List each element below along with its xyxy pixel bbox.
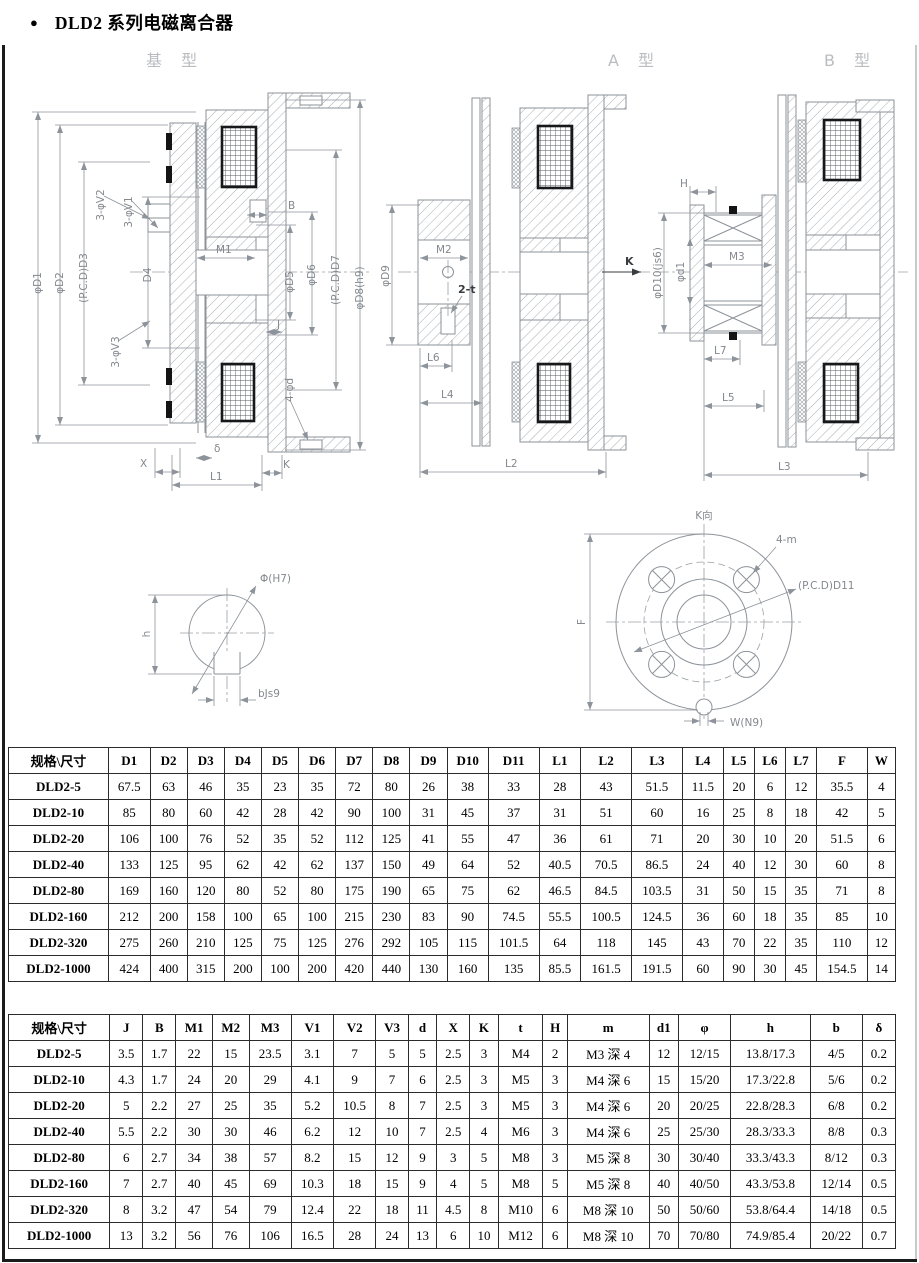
value-cell: 191.5 xyxy=(632,956,683,982)
value-cell: 161.5 xyxy=(581,956,632,982)
value-cell: 4.1 xyxy=(291,1067,333,1093)
value-cell: 125 xyxy=(373,826,410,852)
column-header: F xyxy=(817,748,868,774)
value-cell: M5 深 8 xyxy=(567,1171,649,1197)
value-cell: 25/30 xyxy=(679,1119,731,1145)
value-cell: 6 xyxy=(437,1223,470,1249)
dim-label-x: X xyxy=(140,458,147,470)
value-cell: 2.7 xyxy=(143,1171,176,1197)
dim-label-4m: 4-m xyxy=(776,534,797,546)
technical-drawings: 基 型 A 型 B 型 xyxy=(0,45,919,742)
value-cell: 28 xyxy=(261,800,298,826)
value-cell: 12 xyxy=(649,1041,678,1067)
value-cell: 54 xyxy=(212,1197,249,1223)
dim-label-d2: φD2 xyxy=(54,272,66,294)
value-cell: 83 xyxy=(410,904,447,930)
value-cell: 101.5 xyxy=(488,930,539,956)
column-header: d xyxy=(408,1015,436,1041)
dim-label-l1: L1 xyxy=(210,471,223,483)
value-cell: 35.5 xyxy=(817,774,868,800)
value-cell: 106 xyxy=(249,1223,291,1249)
value-cell: 200 xyxy=(150,904,187,930)
value-cell: 38 xyxy=(212,1145,249,1171)
table-row: DLD2-16072.740456910.31815945M85M5 深 840… xyxy=(9,1171,896,1197)
value-cell: 15 xyxy=(212,1041,249,1067)
dim-label-k-arrow: K xyxy=(625,255,634,268)
table-row: DLD2-16021220015810065100215230839074.55… xyxy=(9,904,896,930)
value-cell: 18 xyxy=(785,800,816,826)
value-cell: 40/50 xyxy=(679,1171,731,1197)
value-cell: 43 xyxy=(682,930,723,956)
value-cell: 130 xyxy=(410,956,447,982)
value-cell: 65 xyxy=(261,904,298,930)
value-cell: 24 xyxy=(682,852,723,878)
value-cell: 71 xyxy=(817,878,868,904)
table-row: DLD2-20106100765235521121254155473661712… xyxy=(9,826,896,852)
dim-label-m2: M2 xyxy=(436,244,452,256)
dim-label-v3: 3-φV3 xyxy=(110,336,122,367)
column-header: D3 xyxy=(187,748,224,774)
value-cell: 292 xyxy=(373,930,410,956)
dim-label-h: H xyxy=(680,178,688,190)
column-header: t xyxy=(498,1015,543,1041)
value-cell: 30 xyxy=(723,826,754,852)
column-header: K xyxy=(470,1015,498,1041)
column-header: D4 xyxy=(224,748,261,774)
value-cell: 4.3 xyxy=(110,1067,143,1093)
value-cell: 75 xyxy=(261,930,298,956)
column-header: D1 xyxy=(108,748,150,774)
dim-label-m3: M3 xyxy=(729,251,745,263)
value-cell: 20/25 xyxy=(679,1093,731,1119)
value-cell: 45 xyxy=(447,800,488,826)
value-cell: 40.5 xyxy=(539,852,581,878)
value-cell: 95 xyxy=(187,852,224,878)
caption-base-type: 基 型 xyxy=(146,51,204,70)
value-cell: 145 xyxy=(632,930,683,956)
value-cell: 35 xyxy=(299,774,336,800)
value-cell: M4 xyxy=(498,1041,543,1067)
model-cell: DLD2-10 xyxy=(9,1067,110,1093)
value-cell: 20 xyxy=(723,774,754,800)
value-cell: 53.8/64.4 xyxy=(731,1197,811,1223)
value-cell: 35 xyxy=(261,826,298,852)
value-cell: 12/15 xyxy=(679,1041,731,1067)
value-cell: 0.7 xyxy=(862,1223,895,1249)
value-cell: 3 xyxy=(543,1145,567,1171)
value-cell: 22 xyxy=(754,930,785,956)
value-cell: 7 xyxy=(408,1093,436,1119)
dim-label-pcd-d11: (P.C.D)D11 xyxy=(798,580,854,592)
value-cell: 45 xyxy=(785,956,816,982)
value-cell: 175 xyxy=(336,878,373,904)
value-cell: 3.2 xyxy=(143,1223,176,1249)
value-cell: 0.5 xyxy=(862,1171,895,1197)
value-cell: 12 xyxy=(334,1119,376,1145)
dim-label-d1-small: φd1 xyxy=(675,262,687,282)
table-row: DLD2-32083.247547912.42218114.58M106M8 深… xyxy=(9,1197,896,1223)
value-cell: 61 xyxy=(581,826,632,852)
value-cell: 150 xyxy=(373,852,410,878)
value-cell: M4 深 6 xyxy=(567,1119,649,1145)
value-cell: 0.2 xyxy=(862,1067,895,1093)
value-cell: 2.2 xyxy=(143,1093,176,1119)
value-cell: 40 xyxy=(176,1171,213,1197)
column-header: L7 xyxy=(785,748,816,774)
value-cell: 1.7 xyxy=(143,1041,176,1067)
value-cell: 18 xyxy=(376,1197,409,1223)
column-header: L4 xyxy=(682,748,723,774)
dim-label-l3: L3 xyxy=(778,461,791,473)
value-cell: 4 xyxy=(437,1171,470,1197)
value-cell: 20 xyxy=(212,1067,249,1093)
value-cell: 65 xyxy=(410,878,447,904)
value-cell: 125 xyxy=(224,930,261,956)
value-cell: 5 xyxy=(408,1041,436,1067)
value-cell: 80 xyxy=(224,878,261,904)
value-cell: 76 xyxy=(187,826,224,852)
value-cell: 2.2 xyxy=(143,1119,176,1145)
table-row: DLD2-10004244003152001002004204401301601… xyxy=(9,956,896,982)
value-cell: 80 xyxy=(150,800,187,826)
value-cell: M6 xyxy=(498,1119,543,1145)
dimension-table-2: 规格\尺寸JBM1M2M3V1V2V3dXKtHmd1φhbδDLD2-53.5… xyxy=(8,1014,896,1249)
table-row: DLD2-401331259562426213715049645240.570.… xyxy=(9,852,896,878)
value-cell: 62 xyxy=(224,852,261,878)
value-cell: 100 xyxy=(299,904,336,930)
value-cell: 24 xyxy=(176,1067,213,1093)
dim-label-h-bore: h xyxy=(141,631,153,638)
value-cell: 30 xyxy=(212,1119,249,1145)
table-row: DLD2-1000133.2567610616.5282413610M126M8… xyxy=(9,1223,896,1249)
value-cell: 45 xyxy=(212,1171,249,1197)
value-cell: 30 xyxy=(649,1145,678,1171)
value-cell: 12 xyxy=(754,852,785,878)
column-header: L2 xyxy=(581,748,632,774)
value-cell: 10.3 xyxy=(291,1171,333,1197)
value-cell: 35 xyxy=(224,774,261,800)
value-cell: 51.5 xyxy=(632,774,683,800)
value-cell: 5 xyxy=(376,1041,409,1067)
value-cell: 115 xyxy=(447,930,488,956)
value-cell: 200 xyxy=(299,956,336,982)
table-row: DLD2-405.52.23030466.2121072.54M63M4 深 6… xyxy=(9,1119,896,1145)
value-cell: 86.5 xyxy=(632,852,683,878)
value-cell: 84.5 xyxy=(581,878,632,904)
column-header: L1 xyxy=(539,748,581,774)
value-cell: 50/60 xyxy=(679,1197,731,1223)
value-cell: 100.5 xyxy=(581,904,632,930)
value-cell: 10.5 xyxy=(334,1093,376,1119)
value-cell: 43 xyxy=(581,774,632,800)
value-cell: 8 xyxy=(376,1093,409,1119)
value-cell: 25 xyxy=(649,1119,678,1145)
value-cell: 12/14 xyxy=(810,1171,862,1197)
value-cell: 28.3/33.3 xyxy=(731,1119,811,1145)
dim-label-d4: D4 xyxy=(142,267,154,282)
value-cell: 36 xyxy=(682,904,723,930)
column-header: D8 xyxy=(373,748,410,774)
value-cell: M8 深 10 xyxy=(567,1223,649,1249)
value-cell: M8 xyxy=(498,1171,543,1197)
column-header: L6 xyxy=(754,748,785,774)
value-cell: 52 xyxy=(261,878,298,904)
value-cell: 135 xyxy=(488,956,539,982)
value-cell: 27 xyxy=(176,1093,213,1119)
bullet-icon: ● xyxy=(30,15,38,31)
value-cell: 276 xyxy=(336,930,373,956)
value-cell: 90 xyxy=(723,956,754,982)
value-cell: 103.5 xyxy=(632,878,683,904)
value-cell: 64 xyxy=(447,852,488,878)
flange-k-view: K向 4-m xyxy=(576,509,854,729)
value-cell: 33.3/43.3 xyxy=(731,1145,811,1171)
value-cell: 125 xyxy=(299,930,336,956)
column-header: b xyxy=(810,1015,862,1041)
dim-label-l5: L5 xyxy=(722,392,735,404)
value-cell: 4 xyxy=(867,774,895,800)
column-header: D7 xyxy=(336,748,373,774)
value-cell: 3 xyxy=(543,1067,567,1093)
dim-label-d1: φD1 xyxy=(32,272,44,294)
value-cell: 33 xyxy=(488,774,539,800)
value-cell: 47 xyxy=(176,1197,213,1223)
value-cell: 6 xyxy=(543,1197,567,1223)
model-cell: DLD2-40 xyxy=(9,1119,110,1145)
page-title: DLD2 系列电磁离合器 xyxy=(55,10,234,35)
value-cell: 74.9/85.4 xyxy=(731,1223,811,1249)
value-cell: 85 xyxy=(108,800,150,826)
value-cell: 7 xyxy=(408,1119,436,1145)
value-cell: 90 xyxy=(447,904,488,930)
value-cell: 12.4 xyxy=(291,1197,333,1223)
value-cell: 6 xyxy=(408,1067,436,1093)
model-cell: DLD2-10 xyxy=(9,800,109,826)
value-cell: M8 深 10 xyxy=(567,1197,649,1223)
value-cell: 275 xyxy=(108,930,150,956)
value-cell: 36 xyxy=(539,826,581,852)
value-cell: 6/8 xyxy=(810,1093,862,1119)
dim-label-d5: φD5 xyxy=(284,271,296,293)
value-cell: 100 xyxy=(373,800,410,826)
value-cell: 160 xyxy=(447,956,488,982)
drawing-base-type: φD1 φD2 (P.C.D)D3 D4 3-φV2 3-φV1 3-φV3 B… xyxy=(32,93,372,491)
dim-label-j: J xyxy=(276,319,280,331)
value-cell: 13 xyxy=(408,1223,436,1249)
column-header: H xyxy=(543,1015,567,1041)
value-cell: 30 xyxy=(754,956,785,982)
table-row: DLD2-8062.73438578.21512935M83M5 深 83030… xyxy=(9,1145,896,1171)
value-cell: 85 xyxy=(817,904,868,930)
column-header: M1 xyxy=(176,1015,213,1041)
value-cell: 3 xyxy=(470,1041,498,1067)
value-cell: 26 xyxy=(410,774,447,800)
value-cell: 46.5 xyxy=(539,878,581,904)
value-cell: M5 xyxy=(498,1067,543,1093)
value-cell: 17.3/22.8 xyxy=(731,1067,811,1093)
value-cell: 12 xyxy=(376,1145,409,1171)
value-cell: 18 xyxy=(754,904,785,930)
value-cell: 69 xyxy=(249,1171,291,1197)
value-cell: 8 xyxy=(867,852,895,878)
page-frame-bottom xyxy=(2,1259,917,1262)
value-cell: 210 xyxy=(187,930,224,956)
dim-label-d8: φD8(h9) xyxy=(354,266,366,309)
column-header: L3 xyxy=(632,748,683,774)
value-cell: 55.5 xyxy=(539,904,581,930)
column-header: V3 xyxy=(376,1015,409,1041)
value-cell: 43.3/53.8 xyxy=(731,1171,811,1197)
model-cell: DLD2-40 xyxy=(9,852,109,878)
value-cell: 70 xyxy=(649,1223,678,1249)
dim-label-4d: 4-φd xyxy=(284,378,296,402)
column-header: D2 xyxy=(150,748,187,774)
column-header: D11 xyxy=(488,748,539,774)
dim-label-v2: 3-φV2 xyxy=(95,189,107,220)
value-cell: 14/18 xyxy=(810,1197,862,1223)
dim-label-l7: L7 xyxy=(714,345,727,357)
model-cell: DLD2-1000 xyxy=(9,1223,110,1249)
dim-label-d10: φD10(js6) xyxy=(652,247,664,299)
value-cell: 31 xyxy=(539,800,581,826)
value-cell: 15 xyxy=(754,878,785,904)
column-header: 规格\尺寸 xyxy=(9,1015,110,1041)
column-header: M3 xyxy=(249,1015,291,1041)
dim-label-l2: L2 xyxy=(505,458,518,470)
value-cell: 35 xyxy=(785,930,816,956)
dim-label-d7: (P.C.D)D7 xyxy=(330,255,342,305)
value-cell: 16.5 xyxy=(291,1223,333,1249)
value-cell: 70/80 xyxy=(679,1223,731,1249)
value-cell: 6 xyxy=(110,1145,143,1171)
value-cell: 5 xyxy=(470,1145,498,1171)
dim-label-v1: 3-φV1 xyxy=(123,196,135,227)
column-header: D9 xyxy=(410,748,447,774)
value-cell: 28 xyxy=(539,774,581,800)
value-cell: 75 xyxy=(447,878,488,904)
value-cell: 56 xyxy=(176,1223,213,1249)
value-cell: 23 xyxy=(261,774,298,800)
value-cell: 7 xyxy=(334,1041,376,1067)
value-cell: 34 xyxy=(176,1145,213,1171)
value-cell: 100 xyxy=(224,904,261,930)
value-cell: 15 xyxy=(376,1171,409,1197)
value-cell: 105 xyxy=(410,930,447,956)
value-cell: 42 xyxy=(224,800,261,826)
value-cell: 3 xyxy=(437,1145,470,1171)
header-row: 规格\尺寸D1D2D3D4D5D6D7D8D9D10D11L1L2L3L4L5L… xyxy=(9,748,896,774)
column-header: m xyxy=(567,1015,649,1041)
value-cell: 3 xyxy=(543,1093,567,1119)
value-cell: 42 xyxy=(261,852,298,878)
value-cell: 169 xyxy=(108,878,150,904)
dim-label-delta: δ xyxy=(214,443,220,455)
model-cell: DLD2-80 xyxy=(9,878,109,904)
value-cell: 60 xyxy=(723,904,754,930)
table-row: DLD2-2052.22725355.210.5872.53M53M4 深 62… xyxy=(9,1093,896,1119)
value-cell: 440 xyxy=(373,956,410,982)
value-cell: 24 xyxy=(376,1223,409,1249)
table-row: DLD2-32027526021012575125276292105115101… xyxy=(9,930,896,956)
value-cell: 124.5 xyxy=(632,904,683,930)
value-cell: 20 xyxy=(649,1093,678,1119)
model-cell: DLD2-5 xyxy=(9,774,109,800)
value-cell: 7 xyxy=(110,1171,143,1197)
value-cell: 76 xyxy=(212,1223,249,1249)
value-cell: 0.3 xyxy=(862,1145,895,1171)
value-cell: 72 xyxy=(336,774,373,800)
value-cell: 40 xyxy=(649,1171,678,1197)
value-cell: 2.5 xyxy=(437,1119,470,1145)
value-cell: 137 xyxy=(336,852,373,878)
value-cell: 315 xyxy=(187,956,224,982)
model-cell: DLD2-20 xyxy=(9,1093,110,1119)
column-header: d1 xyxy=(649,1015,678,1041)
value-cell: 49 xyxy=(410,852,447,878)
value-cell: 12 xyxy=(867,930,895,956)
value-cell: 5 xyxy=(470,1171,498,1197)
value-cell: 106 xyxy=(108,826,150,852)
value-cell: 4.5 xyxy=(437,1197,470,1223)
model-cell: DLD2-320 xyxy=(9,930,109,956)
value-cell: 190 xyxy=(373,878,410,904)
table-row: DLD2-104.31.72420294.19762.53M53M4 深 615… xyxy=(9,1067,896,1093)
value-cell: M4 深 6 xyxy=(567,1067,649,1093)
value-cell: 28 xyxy=(334,1223,376,1249)
value-cell: 71 xyxy=(632,826,683,852)
value-cell: 154.5 xyxy=(817,956,868,982)
value-cell: 62 xyxy=(299,852,336,878)
model-cell: DLD2-160 xyxy=(9,904,109,930)
value-cell: 42 xyxy=(817,800,868,826)
value-cell: 0.2 xyxy=(862,1041,895,1067)
value-cell: 1.7 xyxy=(143,1067,176,1093)
value-cell: 23.5 xyxy=(249,1041,291,1067)
value-cell: 57 xyxy=(249,1145,291,1171)
value-cell: 79 xyxy=(249,1197,291,1223)
value-cell: 50 xyxy=(649,1197,678,1223)
model-cell: DLD2-1000 xyxy=(9,956,109,982)
dim-label-wn9: W(N9) xyxy=(730,717,763,729)
value-cell: 0.5 xyxy=(862,1197,895,1223)
value-cell: 70 xyxy=(723,930,754,956)
value-cell: 15 xyxy=(334,1145,376,1171)
dim-label-m1: M1 xyxy=(216,244,232,256)
model-cell: DLD2-80 xyxy=(9,1145,110,1171)
dim-label-k: K xyxy=(283,459,291,471)
dim-label-bjs9: bJs9 xyxy=(258,688,280,700)
value-cell: 52 xyxy=(224,826,261,852)
value-cell: 51 xyxy=(581,800,632,826)
value-cell: 112 xyxy=(336,826,373,852)
value-cell: 42 xyxy=(299,800,336,826)
value-cell: 13.8/17.3 xyxy=(731,1041,811,1067)
table-row: DLD2-8016916012080528017519065756246.584… xyxy=(9,878,896,904)
column-header: V1 xyxy=(291,1015,333,1041)
column-header: L5 xyxy=(723,748,754,774)
value-cell: 37 xyxy=(488,800,539,826)
column-header: D10 xyxy=(447,748,488,774)
value-cell: 133 xyxy=(108,852,150,878)
value-cell: 120 xyxy=(187,878,224,904)
value-cell: 6 xyxy=(543,1223,567,1249)
model-cell: DLD2-5 xyxy=(9,1041,110,1067)
value-cell: 3.5 xyxy=(110,1041,143,1067)
value-cell: 63 xyxy=(150,774,187,800)
value-cell: 52 xyxy=(299,826,336,852)
value-cell: 3 xyxy=(470,1067,498,1093)
value-cell: 8 xyxy=(110,1197,143,1223)
